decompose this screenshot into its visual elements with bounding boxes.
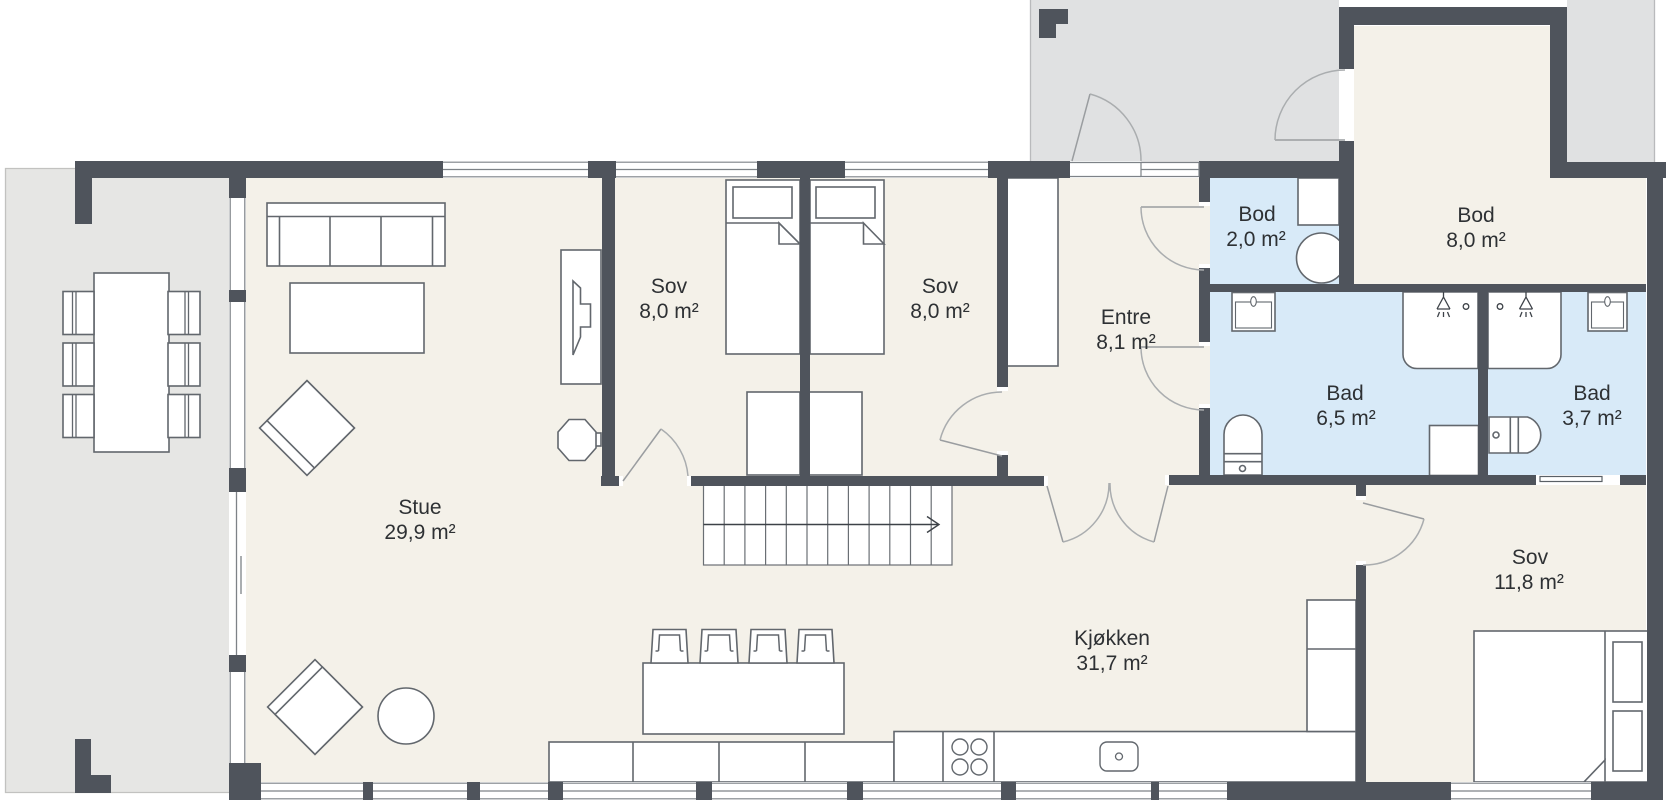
svg-text:11,8 m²: 11,8 m² [1494,571,1564,594]
svg-text:2,0 m²: 2,0 m² [1226,228,1286,251]
svg-text:Sov: Sov [922,275,959,298]
svg-text:Kjøkken: Kjøkken [1074,627,1150,650]
svg-text:29,9 m²: 29,9 m² [384,521,455,544]
svg-text:31,7 m²: 31,7 m² [1076,652,1147,675]
svg-text:Entre: Entre [1101,306,1151,329]
svg-text:Bod: Bod [1238,203,1275,226]
svg-text:Bad: Bad [1326,382,1363,405]
svg-text:Bod: Bod [1457,204,1494,227]
svg-text:Sov: Sov [1512,546,1549,569]
svg-text:Sov: Sov [651,275,688,298]
svg-text:Stue: Stue [398,496,441,519]
svg-text:3,7 m²: 3,7 m² [1562,407,1622,430]
svg-text:8,0 m²: 8,0 m² [639,300,699,323]
svg-text:8,0 m²: 8,0 m² [910,300,970,323]
svg-text:Bad: Bad [1573,382,1610,405]
svg-text:8,0 m²: 8,0 m² [1446,229,1506,252]
svg-text:8,1 m²: 8,1 m² [1096,331,1156,354]
svg-text:6,5 m²: 6,5 m² [1316,407,1376,430]
